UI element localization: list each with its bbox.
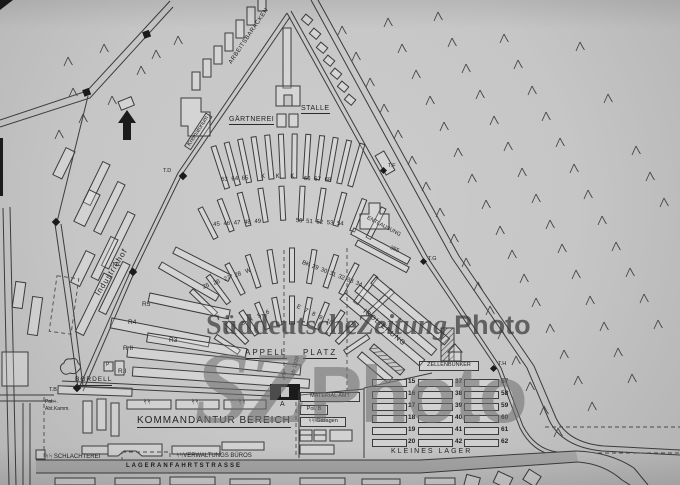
r5-label: R5: [142, 302, 150, 309]
ss-runes-1: ᛋᛋ: [143, 400, 151, 407]
watermark-sz: SZ: [194, 330, 305, 447]
gaertnerei-staelle-buildings: [276, 28, 300, 127]
scanned-camp-map-photo: ARBEITSBARACKEN Krematorium GÄRTNEREI ST…: [0, 0, 680, 485]
schlachterei-label: ᛋᛋ SCHLACHTEREI: [45, 454, 100, 460]
tower-label-tf: T.F: [388, 164, 396, 170]
tower-label-tc: T.C: [112, 263, 120, 269]
apex-houses: [301, 14, 355, 105]
lageranfahrtstrasse-label: LAGERANFAHRTSTRASSE: [126, 463, 242, 469]
tower-label-td: T.D: [163, 169, 171, 175]
r1-label: R.I: [118, 369, 126, 376]
bush-icon: [60, 359, 80, 375]
barrack-numbers-row1-mid: K K K: [261, 174, 294, 180]
tower-label-tb: T.B: [49, 388, 57, 394]
r2-label: R II: [123, 346, 133, 353]
staelle-label: STALLE: [301, 105, 330, 114]
arbeitsbaracken-row: [192, 0, 266, 90]
r4-label: R4: [128, 320, 136, 327]
r3-label: R3: [169, 338, 177, 345]
kleines-lager-label: KLEINES LAGER: [391, 448, 472, 455]
bordell-label: BORDELL: [75, 377, 112, 386]
gaertnerei-label: GÄRTNEREI: [229, 116, 274, 125]
photo-artifacts: [0, 0, 13, 196]
watermark-photo-big: Photo: [309, 349, 526, 441]
tower-label-tg: T.G: [428, 257, 437, 263]
watermark-szphoto-big: SZPhoto: [194, 330, 526, 447]
pol-abt-label-line2: Abt.Kamm.: [45, 407, 70, 412]
p-building-label: P: [106, 363, 109, 368]
verwaltungs-bueros-label: ᛋᛋVERWALTUNGS BÜROS: [176, 453, 252, 459]
marked-building-arrow: [118, 97, 136, 140]
pol-abt-label-line1: Pol.+.: [45, 400, 58, 405]
